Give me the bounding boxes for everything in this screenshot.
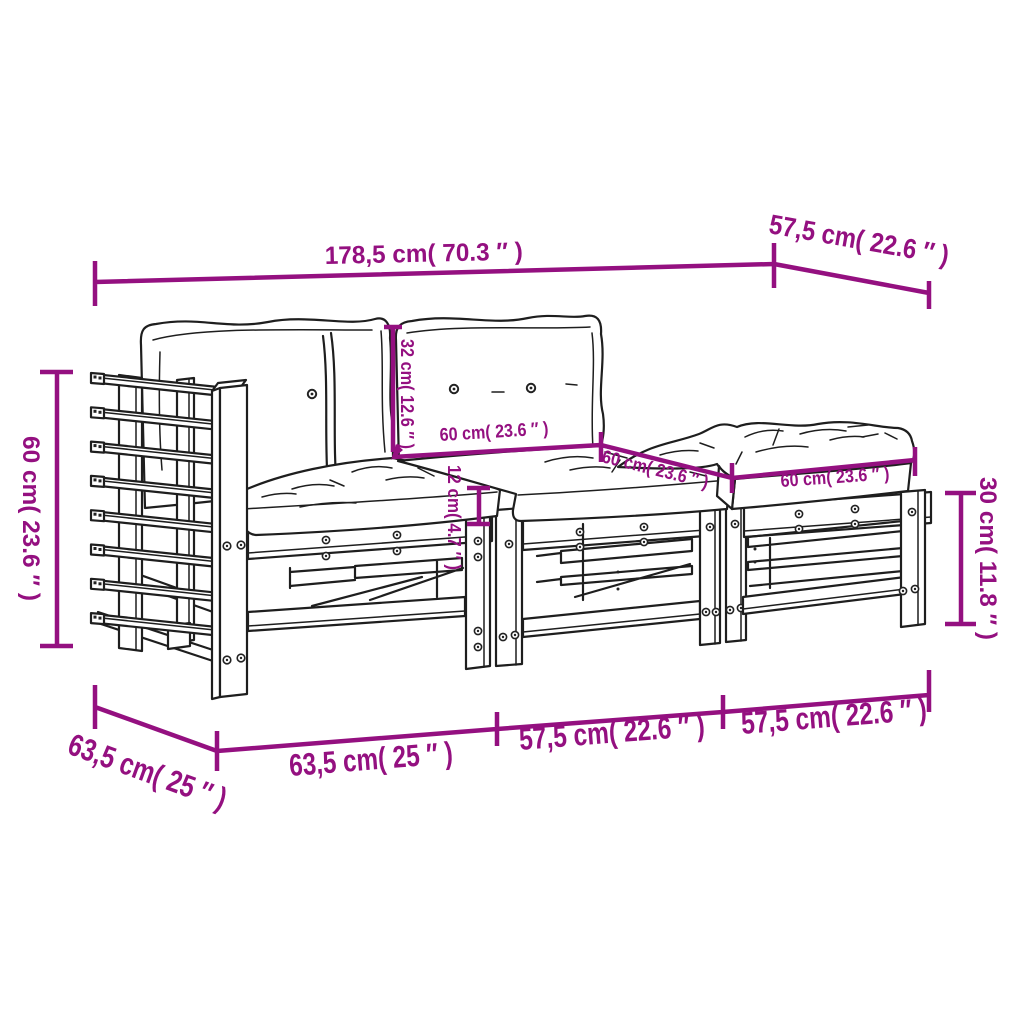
svg-text:60 cm( 23.6 ″ ): 60 cm( 23.6 ″ ) <box>17 436 44 601</box>
svg-text:32 cm( 12.6 ″ ): 32 cm( 12.6 ″ ) <box>397 339 417 449</box>
svg-text:178,5 cm( 70.3 ″ ): 178,5 cm( 70.3 ″ ) <box>325 238 524 270</box>
svg-text:30 cm( 11.8 ″ ): 30 cm( 11.8 ″ ) <box>974 477 1001 640</box>
svg-text:12 cm( 4.7 ″ ): 12 cm( 4.7 ″ ) <box>444 465 465 570</box>
